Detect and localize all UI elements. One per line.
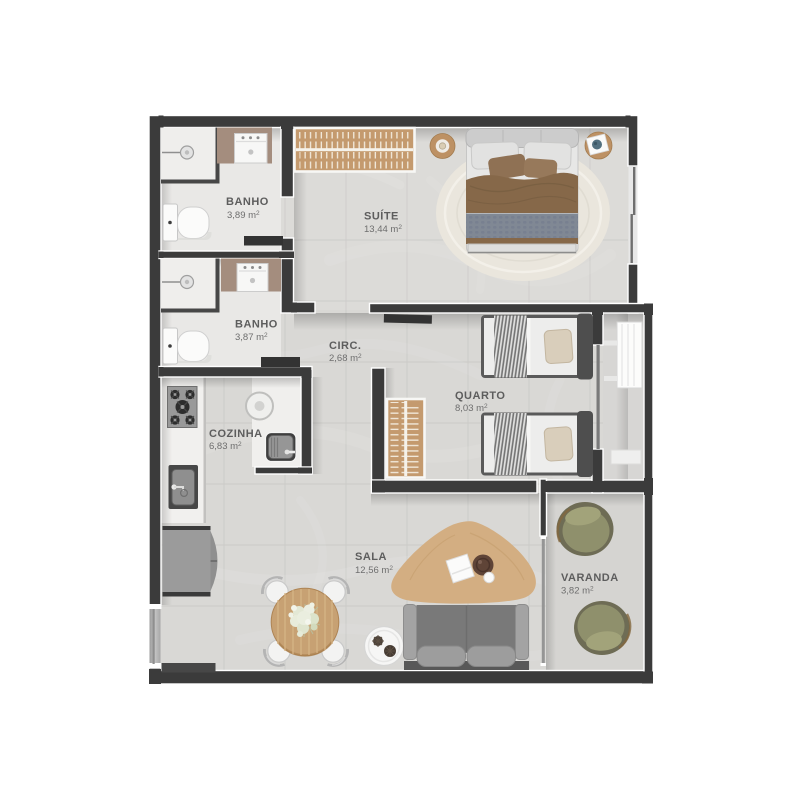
svg-text:SALA: SALA xyxy=(355,551,387,563)
svg-text:CIRC.: CIRC. xyxy=(329,340,361,352)
svg-text:BANHO: BANHO xyxy=(226,196,269,208)
svg-text:3,89 m2: 3,89 m2 xyxy=(227,210,260,221)
svg-text:BANHO: BANHO xyxy=(235,319,278,331)
svg-text:COZINHA: COZINHA xyxy=(209,428,263,440)
svg-text:2,68 m2: 2,68 m2 xyxy=(329,353,362,364)
svg-text:12,56 m2: 12,56 m2 xyxy=(355,565,393,576)
svg-text:SUÍTE: SUÍTE xyxy=(364,210,399,223)
svg-text:QUARTO: QUARTO xyxy=(455,390,505,402)
svg-text:8,03 m2: 8,03 m2 xyxy=(455,403,488,414)
svg-text:VARANDA: VARANDA xyxy=(561,572,619,584)
svg-text:3,82 m2: 3,82 m2 xyxy=(561,586,594,597)
svg-text:6,83 m2: 6,83 m2 xyxy=(209,441,242,452)
svg-text:13,44 m2: 13,44 m2 xyxy=(364,224,402,235)
svg-text:3,87 m2: 3,87 m2 xyxy=(235,332,268,343)
